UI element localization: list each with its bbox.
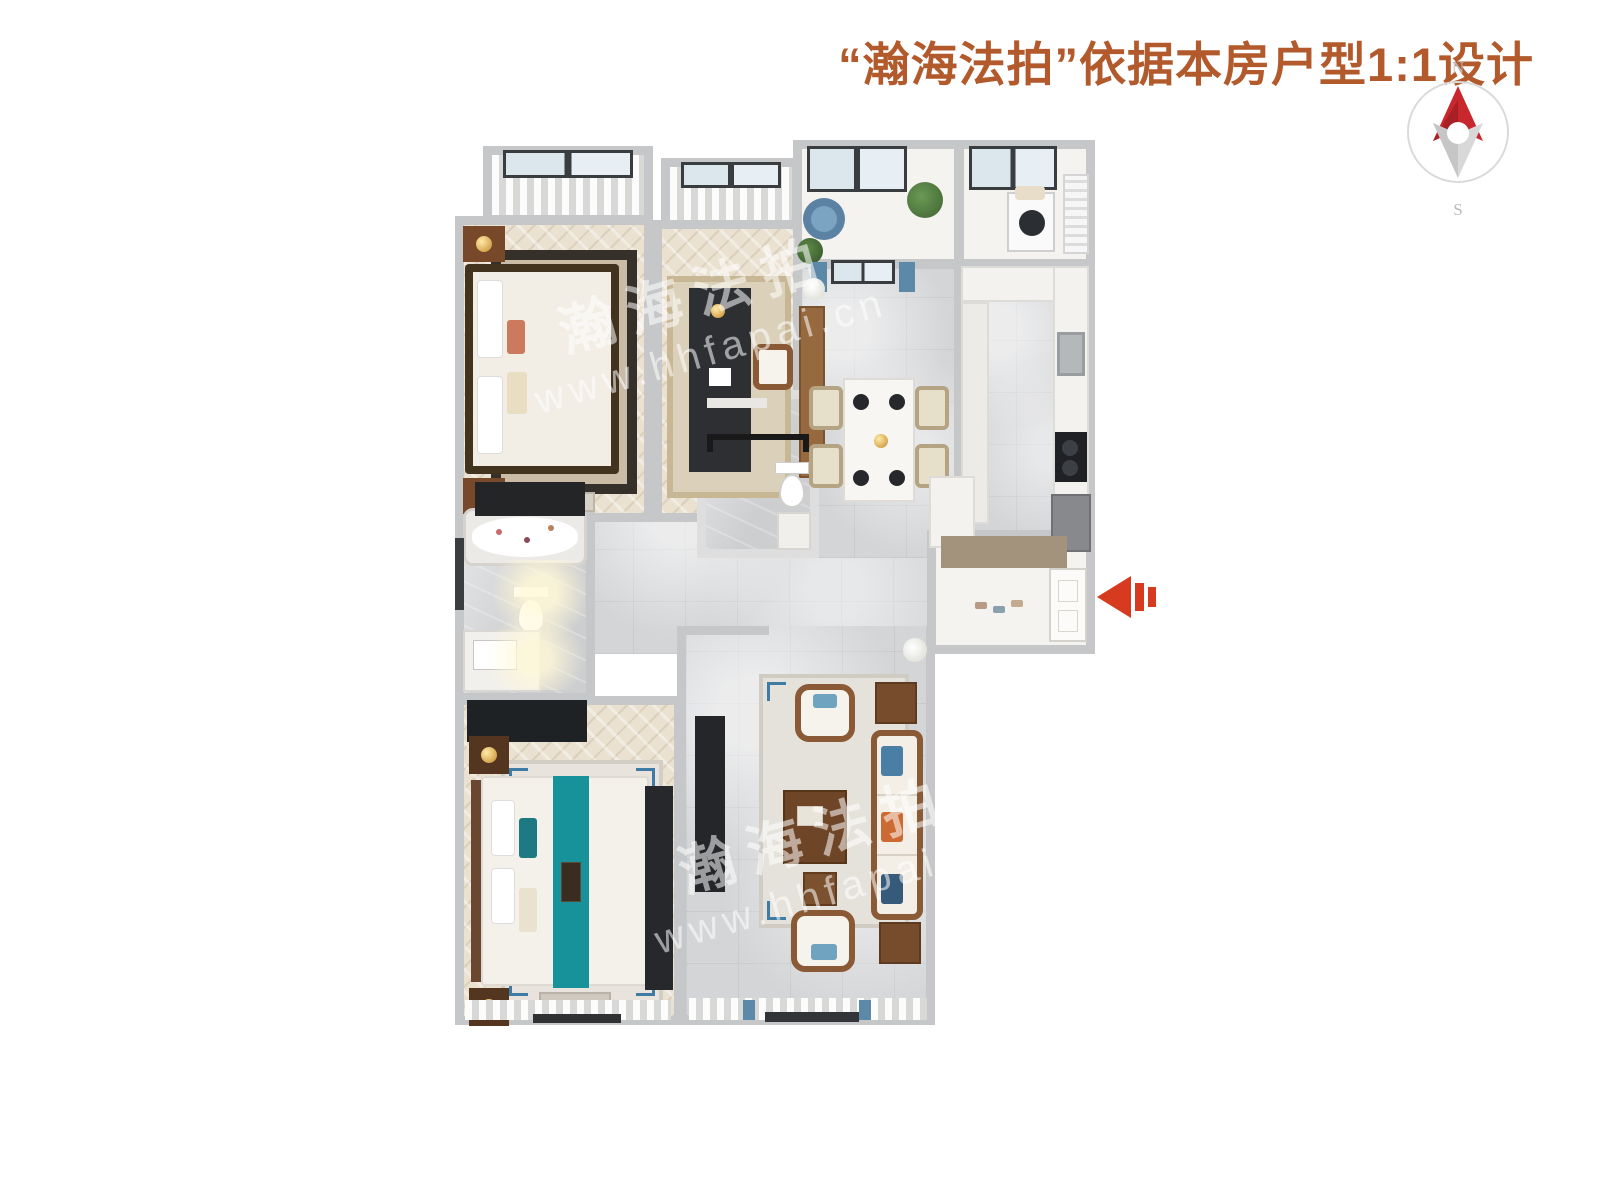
side-table [875,682,917,724]
curtain-blue [743,1000,755,1020]
lamp-icon [481,747,497,763]
chandelier-icon [874,434,888,448]
wall-segment [677,626,769,635]
pillow-orange [881,812,903,842]
desk-chair [753,344,793,390]
compass-rose-icon [1406,80,1510,184]
headboard [471,780,481,982]
toilet-tank [775,462,809,474]
accent-pillow [507,320,525,354]
bed [465,264,619,474]
pillow-blue [813,694,837,708]
flowers [803,278,825,300]
slipper [993,606,1005,613]
plate [889,470,905,486]
compass-icon: N S [1402,58,1514,220]
table-decor [797,806,823,826]
shower-glass [707,434,713,452]
sink-icon [1057,332,1085,376]
shower-glass [803,434,809,452]
lounge-chair [803,198,845,240]
entry-door [1049,568,1087,642]
window-icon [455,538,464,610]
skylight-window-icon [807,146,907,192]
dining-table [843,378,915,502]
window-sill [533,1014,621,1023]
pillow-blue [811,944,837,960]
end-table [803,872,837,906]
bed-tray [561,862,581,902]
plant-icon [797,238,823,264]
dining-chair [809,444,843,488]
dining-chair [809,386,843,430]
page: “瀚海法拍”依据本房户型1:1设计 N S [0,0,1600,1200]
plant-icon [907,182,943,218]
curtain-blue [899,262,915,292]
bed-runner-teal [553,776,589,988]
window-icon [503,150,633,178]
washing-machine-icon [1007,192,1055,252]
bathtub-icon [463,508,587,566]
dining-chair [915,386,949,430]
bed [481,776,649,986]
toilet-tank [513,586,549,598]
curtain-blue [859,1000,871,1020]
slipper [975,602,987,609]
shower-glass [707,434,809,440]
flowers [903,638,927,662]
pillow-navy [881,874,903,904]
pillow [491,800,515,856]
bathroom-vanity [463,630,541,692]
toilet-icon [779,474,805,508]
laundry-basket [1015,186,1045,200]
wall-accent-dark [475,482,585,516]
window-sill [765,1012,859,1022]
coffee-table [783,790,847,864]
lamp-icon [711,304,725,318]
armchair [791,910,855,972]
pillow [477,280,503,358]
floorplan [455,140,1095,1025]
lamp-icon [476,236,492,252]
compass-north-label: N [1402,58,1514,78]
compass-south-label: S [1402,200,1514,220]
armchair [795,684,855,742]
paper [709,368,731,386]
window-icon [831,260,895,284]
bath-shelf [707,398,767,408]
accent-pillow [507,372,527,414]
pillow [491,868,515,924]
side-table [879,922,921,964]
window-icon [681,162,781,188]
nightstand [463,226,505,262]
desk [689,288,751,472]
sofa [871,730,923,920]
cooktop-icon [1055,432,1087,482]
accent-pillow [519,818,537,858]
accent-pillow [519,888,537,932]
plate [889,394,905,410]
plate [853,470,869,486]
skylight-window-icon [969,146,1057,190]
plate [853,394,869,410]
tv-panel-dark [695,716,725,892]
drying-rack [1063,174,1089,254]
toilet-icon [517,598,545,634]
entrance-left-arrow-icon [1096,574,1160,620]
tv-cabinet-dark [645,786,673,990]
pillow [477,376,503,454]
pillow-blue [881,746,903,776]
vanity [777,512,811,550]
shoe-cabinet [941,536,1067,568]
nightstand [469,736,509,774]
slipper [1011,600,1023,607]
